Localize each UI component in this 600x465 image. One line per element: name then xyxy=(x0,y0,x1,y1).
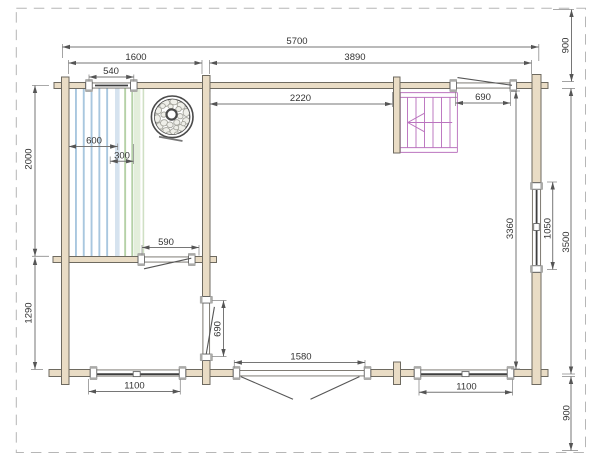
svg-text:590: 590 xyxy=(158,237,174,248)
svg-text:900: 900 xyxy=(561,38,572,54)
svg-text:1100: 1100 xyxy=(124,381,144,392)
svg-text:1100: 1100 xyxy=(456,381,476,392)
svg-text:3500: 3500 xyxy=(561,231,572,252)
svg-text:540: 540 xyxy=(103,66,119,77)
svg-text:1580: 1580 xyxy=(290,352,311,363)
svg-text:300: 300 xyxy=(114,151,130,162)
svg-text:690: 690 xyxy=(475,92,491,103)
svg-text:690: 690 xyxy=(213,321,224,337)
svg-text:1050: 1050 xyxy=(542,218,553,239)
svg-text:5700: 5700 xyxy=(286,36,307,47)
svg-text:1290: 1290 xyxy=(24,302,35,323)
svg-text:3890: 3890 xyxy=(344,52,365,63)
svg-text:2000: 2000 xyxy=(24,148,35,169)
svg-text:1600: 1600 xyxy=(125,52,146,63)
svg-text:3360: 3360 xyxy=(505,218,516,239)
svg-text:2220: 2220 xyxy=(290,93,311,104)
svg-text:900: 900 xyxy=(562,405,573,421)
svg-text:600: 600 xyxy=(86,136,102,147)
